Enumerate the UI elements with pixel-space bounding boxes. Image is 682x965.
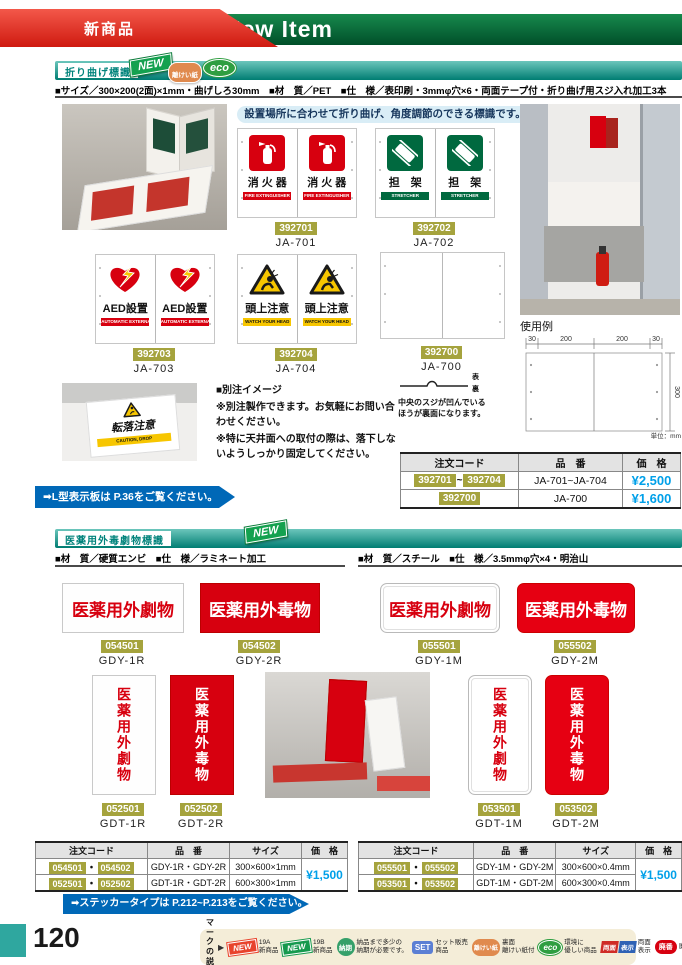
order-code-badge: 392704 [275,348,316,361]
table-row: 052501・052502 GDT-1R・GDT-2R 600×300×1mm [36,875,348,892]
legend-item-discontinued: 廃番 廃番商品 [655,940,682,954]
sign-text: 医薬用外劇物 [114,687,134,783]
page-number: 120 [33,922,80,954]
legend-item-double-sided: 両面 表示 両面 表示 [601,939,651,955]
order-code-badge: 054502 [98,862,134,874]
release-paper-badge-icon: 離けい紙 [472,939,500,956]
price-cell: ¥2,500 [623,472,681,490]
legend-title: マークの 説明 [206,918,214,965]
photo-wall-left [520,104,548,315]
dim-label-side: 300 [673,386,680,398]
sign-gdy1r: 医薬用外劇物 [62,583,184,633]
model-number: GDY-2R [200,655,318,668]
sign-gdt1m: 医薬用外劇物 [468,675,532,795]
model-number: GDT-1R [80,818,166,831]
sign-text: 頭上注意 [305,300,349,316]
product-id-ja701: 392701 JA-701 [237,218,355,250]
product-id-gdt2r: 052502 GDT-2R [158,799,244,831]
legend-text: 環境に 優しい商品 [564,939,597,955]
section2-specs-right: ■材 質／スチール ■仕 様／3.5mmφ穴×4・明治山 [358,551,588,565]
sign-text: AED設置 [103,300,148,316]
legend-text: 19B 新商品 [313,939,333,955]
dim-label: 30 [652,336,660,343]
dim-label: 200 [560,336,572,343]
order-code-badge: 055501 [374,862,410,874]
order-code-badge: 392700 [439,492,480,505]
col-header-code: 注文コード [36,842,148,859]
section2-bar: 医薬用外毒劇物標識 [55,529,682,548]
watch-your-head-icon [249,261,285,297]
l-type-page-link[interactable]: ➡L型表示板は P.36をご覧ください。 [35,486,235,508]
fold-direction-diagram: 表 裏 中央のスジが凹んでいるほうが裏面になります。 [398,376,490,419]
model-number: GDY-2M [517,655,633,668]
custom-order-note: ■別注イメージ ※別注製作できます。お気軽にお問い合わせください。 ※特に天井面… [216,383,396,464]
sign-panel: AED設置 AUTOMATIC EXTERNAL DEFIBRILLATOR [155,255,215,343]
size-cell: 300×600×0.4mm [556,859,636,875]
col-header-price: 価 格 [623,453,681,472]
sign-panel: 消 火 器 FIRE EXTINGUISHER [238,129,297,217]
aed-heart-icon [107,261,143,297]
order-code-badge: 392702 [413,222,454,235]
sign-gdy2m: 医薬用外毒物 [517,583,635,633]
photo-red-strip [377,776,430,791]
sign-gdy2r: 医薬用外毒物 [200,583,320,633]
fold-line-drawing [398,376,470,390]
product-id-gdy1m: 055501 GDY-1M [380,636,498,668]
mark-legend: マークの 説明 ▶ NEW 19A 新商品 NEW 19B 新商品 納期 納品ま… [200,929,636,965]
legend-text: 両面 表示 [638,939,651,955]
sign-panel: 頭上注意 WATCH YOUR HEAD [297,255,357,343]
custom-sign-text: 転落注意 [110,416,155,436]
delivery-time-badge-icon: 納期 [337,938,355,956]
legend-item-19b: NEW 19B 新商品 [282,939,332,955]
order-code-badge: 392703 [133,348,174,361]
col-header-price: 価 格 [302,842,348,859]
col-header-model: 品 番 [474,842,556,859]
col-header-size: サイズ [230,842,302,859]
photo-red-pictogram [146,177,189,212]
photo-red-strip [273,762,368,782]
order-code-badge: 053502 [555,803,596,816]
stretcher-icon [387,135,423,171]
custom-order-image: 転落注意 CAUTION, DROP [62,383,197,461]
fold-front-label: 表 [472,372,479,382]
model-number: GDY-1R [62,655,182,668]
photo-sign-flat [77,165,213,230]
section1-banner: 設置場所に合わせて折り曲げ、角度調節のできる標識です。 [237,106,533,123]
sign-band: AUTOMATIC EXTERNAL DEFIBRILLATOR [101,318,149,326]
model-cell: GDY-1R・GDY-2R [148,859,230,875]
model-number: GDT-1M [456,818,542,831]
model-cell: JA-700 [519,490,623,509]
legend-text: セット販売 商品 [435,939,468,955]
legend-item-eco: eco 環境に 優しい商品 [538,939,596,955]
table-row: 053501・053502 GDT-1M・GDT-2M 600×300×0.4m… [359,875,682,892]
legend-text: 裏面 離けい紙付 [502,939,535,955]
model-number: JA-700 [380,361,503,374]
model-number: GDT-2R [158,818,244,831]
photo-green-pictogram [186,118,208,153]
sign-band: STRETCHER [441,192,489,200]
order-table-vinyl-signs: 注文コード 品 番 サイズ 価 格 054501・054502 GDY-1R・G… [35,841,348,892]
sign-panel: 担 架 STRETCHER [435,129,495,217]
catalog-page: 19B New Item 新商品 折り曲げ標識 NEW 離けい紙 eco ■サイ… [0,0,682,965]
usage-example-label: 使用例 [520,318,553,334]
order-code-badge: 052501 [49,878,85,890]
sign-text: 頭上注意 [245,300,289,316]
note-title: ■別注イメージ [216,383,396,398]
model-number: GDY-1M [380,655,498,668]
legend-text: 納品まで多少の 納期が必要です。 [357,939,408,955]
model-number: GDT-2M [533,818,619,831]
sign-text: 医薬用外劇物 [389,596,491,621]
order-code-badge: 054501 [101,640,142,653]
range-separator: ~ [457,475,463,486]
product-id-ja704: 392704 JA-704 [237,344,355,376]
sign-text: 医薬用外毒物 [209,596,311,621]
product-id-gdt2m: 053502 GDT-2M [533,799,619,831]
sign-text: 医薬用外劇物 [72,596,174,621]
sign-band: WATCH YOUR HEAD [303,318,351,326]
model-cell: GDT-1M・GDT-2M [474,875,556,892]
aed-heart-icon [167,261,203,297]
photo-white-band [548,182,640,226]
pair-separator: ・ [411,879,421,890]
eco-badge-icon: eco [538,940,562,955]
sign-text: 医薬用外毒物 [525,596,627,621]
col-header-price: 価 格 [636,842,682,859]
dim-label: 200 [616,336,628,343]
col-header-size: サイズ [556,842,636,859]
usage-example-photo [520,104,680,315]
sign-band: FIRE EXTINGUISHER [243,192,291,200]
photo-door [640,104,680,315]
size-cell: 600×300×1mm [230,875,302,892]
order-code-badge: 053501 [478,803,519,816]
sign-panel: AED設置 AUTOMATIC EXTERNAL DEFIBRILLATOR [96,255,155,343]
order-code-badge: 392701 [414,474,455,487]
order-code-badge: 052502 [98,878,134,890]
model-number: JA-704 [237,363,355,376]
new-19a-badge-icon: NEW [227,939,257,956]
sign-text: 医薬用外劇物 [490,687,510,783]
legend-item-release-paper: 離けい紙 裏面 離けい紙付 [472,939,535,956]
divider [55,565,345,567]
divider [358,565,682,567]
sign-card-ja703: AED設置 AUTOMATIC EXTERNAL DEFIBRILLATOR A… [95,254,215,344]
legend-item-set: SET セット販売 商品 [412,939,468,955]
product-id-gdy2m: 055502 GDY-2M [517,636,633,668]
model-cell: GDT-1R・GDT-2R [148,875,230,892]
fold-back-label: 裏 [472,384,479,394]
stretcher-icon [447,135,483,171]
product-id-ja702: 392702 JA-702 [375,218,493,250]
sign-gdt2r: 医薬用外毒物 [170,675,234,795]
photo-extinguisher-valve [599,246,606,254]
ribbon-label: 新商品 [84,18,135,39]
sign-panel: 頭上注意 WATCH YOUR HEAD [238,255,297,343]
pair-separator: ・ [87,879,97,890]
order-table-steel-signs: 注文コード 品 番 サイズ 価 格 055501・055502 GDY-1M・G… [358,841,682,892]
photo-green-pictogram [153,118,175,153]
order-code-badge: 392704 [463,474,504,487]
fire-extinguisher-icon [249,135,285,171]
legend-item-nouki: 納期 納品まで多少の 納期が必要です。 [337,938,408,956]
order-table-fold-signs: 注文コード 品 番 価 格 392701~392704 JA-701~JA-70… [400,452,681,509]
table-row: 392700 JA-700 ¥1,600 [401,490,681,509]
order-code-badge: 055502 [554,640,595,653]
sign-text: 消 火 器 [307,174,346,190]
eco-badge: eco [203,59,236,77]
product-id-gdt1r: 052501 GDT-1R [80,799,166,831]
order-code-badge: 054502 [238,640,279,653]
model-cell: JA-701~JA-704 [519,472,623,490]
order-code-badge: 392700 [421,346,462,359]
photo-red-pictogram [91,186,134,221]
sign-panel-blank [381,253,442,338]
photo-corner-sign-front [590,116,606,148]
product-photo-folded-signs [62,104,227,230]
col-header-code: 注文コード [401,453,519,472]
product-id-gdt1m: 053501 GDT-1M [456,799,542,831]
model-number: JA-701 [237,237,355,250]
sign-band: AUTOMATIC EXTERNAL DEFIBRILLATOR [161,318,209,326]
price-cell: ¥1,600 [623,490,681,509]
order-code-badge: 055501 [418,640,459,653]
photo-cabinet [544,226,644,282]
sign-card-ja702: 担 架 STRETCHER 担 架 STRETCHER [375,128,495,218]
sign-panel-blank [442,253,504,338]
model-cell: GDY-1M・GDY-2M [474,859,556,875]
table-row: 055501・055502 GDY-1M・GDY-2M 300×600×0.4m… [359,859,682,875]
sign-band: FIRE EXTINGUISHER [303,192,351,200]
sign-text: 消 火 器 [248,174,287,190]
custom-sign-band: CAUTION, DROP [97,433,171,447]
table-row: 054501・054502 GDY-1R・GDY-2R 300×600×1mm … [36,859,348,875]
section1-specs: ■サイズ／300×200(2面)×1mm・曲げしろ30mm ■材 質／PET ■… [55,83,666,97]
sticker-type-page-link[interactable]: ➡ステッカータイプは P.212~P.213をご覧ください。 [63,894,309,914]
order-code-badge: 054501 [49,862,85,874]
note-line: ※別注製作できます。お気軽にお問い合わせください。 [216,400,396,430]
sign-card-ja701: 消 火 器 FIRE EXTINGUISHER 消 火 器 FIRE EXTIN… [237,128,357,218]
size-cell: 300×600×1mm [230,859,302,875]
product-id-ja703: 392703 JA-703 [95,344,213,376]
dim-label: 30 [528,336,536,343]
table-row: 392701~392704 JA-701~JA-704 ¥2,500 [401,472,681,490]
order-code-badge: 053501 [374,878,410,890]
dimension-diagram: 30 200 200 30 300 単位：mm [518,333,682,439]
photo-red-vertical-sign [325,679,367,763]
note-line: ※特に天井面への取付の際は、落下しないようしっかり固定してください。 [216,432,396,462]
legend-text: 19A 新商品 [259,939,279,955]
sign-card-ja700-blank [380,252,505,339]
sign-gdt2m: 医薬用外毒物 [545,675,609,795]
sign-band: STRETCHER [381,192,429,200]
col-header-model: 品 番 [519,453,623,472]
product-photo-poison-signs [265,672,430,798]
product-id-gdy2r: 054502 GDY-2R [200,636,318,668]
order-code-badge: 053502 [422,878,458,890]
photo-floor [520,299,680,315]
pair-separator: ・ [411,863,421,874]
sign-text: 医薬用外毒物 [192,687,212,783]
size-cell: 600×300×0.4mm [556,875,636,892]
price-cell: ¥1,500 [636,859,682,892]
discontinued-badge-icon: 廃番 [655,940,677,954]
legend-arrow-icon: ▶ [218,943,224,952]
page-number-block [0,924,26,957]
hanging-sign: 転落注意 CAUTION, DROP [86,394,181,458]
set-badge-icon: SET [412,941,434,954]
order-code-badge: 392701 [275,222,316,235]
sign-gdt1r: 医薬用外劇物 [92,675,156,795]
order-code-badge: 055502 [422,862,458,874]
sign-panel: 担 架 STRETCHER [376,129,435,217]
new-19b-badge-icon: NEW [282,939,312,956]
sign-band: WATCH YOUR HEAD [243,318,291,326]
photo-fire-extinguisher [596,252,609,286]
fold-note-text: 中央のスジが凹んでいるほうが裏面になります。 [398,397,490,419]
order-code-badge: 052502 [180,803,221,816]
product-id-gdy1r: 054501 GDY-1R [62,636,182,668]
price-cell: ¥1,500 [302,859,348,892]
caution-drop-icon [122,401,141,418]
section2-specs-left: ■材 質／硬質エンビ ■仕 様／ラミネート加工 [55,551,266,565]
watch-your-head-icon [309,261,345,297]
sign-text: 医薬用外毒物 [567,687,587,783]
col-header-code: 注文コード [359,842,474,859]
section1-title: 折り曲げ標識 [58,63,138,78]
photo-white-vertical-sign [365,696,406,771]
model-number: JA-703 [95,363,213,376]
sign-card-ja704: 頭上注意 WATCH YOUR HEAD 頭上注意 WATCH YOUR HEA… [237,254,357,344]
double-sided-badge-icon: 表示 [618,941,637,953]
double-sided-badge-icon: 両面 [600,941,619,953]
sign-text: AED設置 [162,300,207,316]
sign-text: 担 架 [448,174,481,190]
section2-title: 医薬用外毒劇物標識 [58,531,171,546]
sign-panel: 消 火 器 FIRE EXTINGUISHER [297,129,357,217]
photo-corner-sign-side [606,118,618,148]
product-id-ja700: 392700 JA-700 [380,342,503,374]
sign-gdy1m: 医薬用外劇物 [380,583,500,633]
fire-extinguisher-icon [309,135,345,171]
model-number: JA-702 [375,237,493,250]
divider [55,96,682,98]
col-header-model: 品 番 [148,842,230,859]
photo-sign-face [146,108,182,181]
sign-text: 担 架 [389,174,422,190]
order-code-badge: 052501 [102,803,143,816]
pair-separator: ・ [87,863,97,874]
unit-label: 単位：mm [651,431,681,439]
release-paper-badge: 離けい紙 [168,62,202,83]
legend-item-19a: NEW 19A 新商品 [228,939,278,955]
